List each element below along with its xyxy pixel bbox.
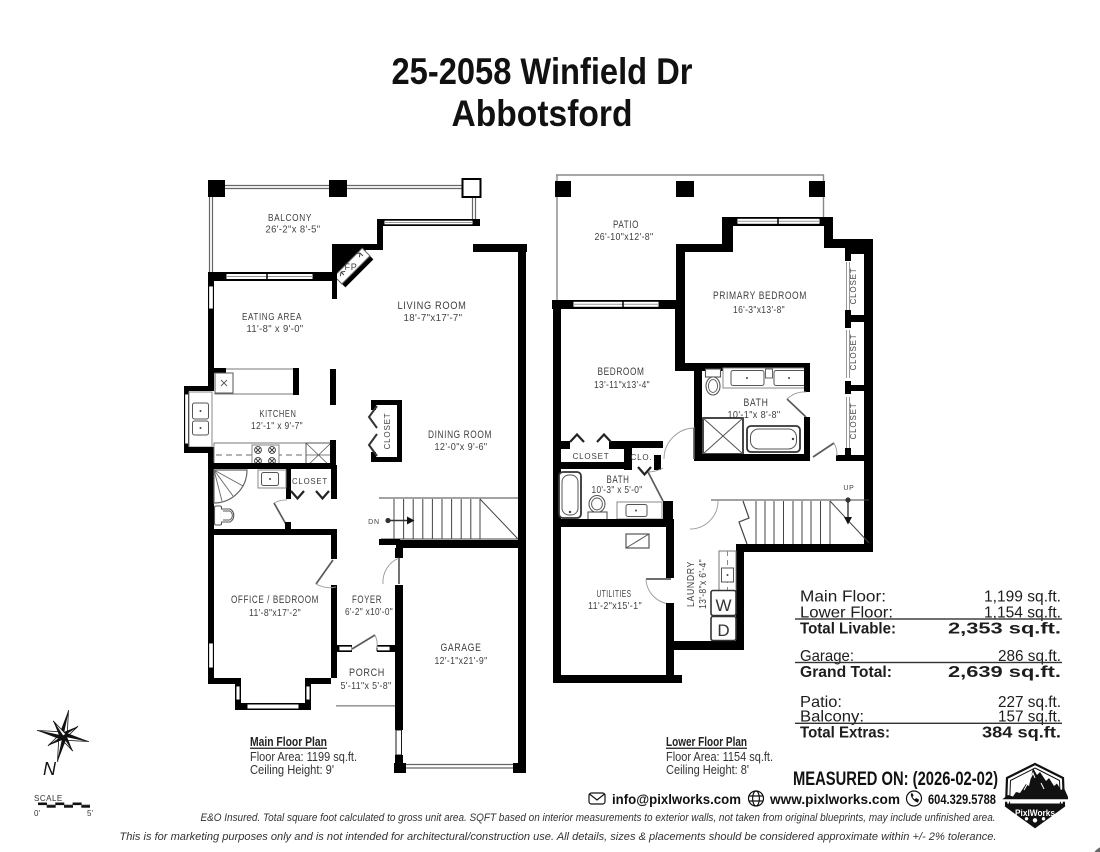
svg-text:Ceiling Height: 9': Ceiling Height: 9' (250, 763, 334, 777)
svg-text:16'-3"x13'-8": 16'-3"x13'-8" (733, 304, 785, 316)
svg-text:CLOSET: CLOSET (292, 477, 328, 486)
svg-text:2,353 sq.ft.: 2,353 sq.ft. (948, 621, 1061, 638)
svg-text:5': 5' (87, 809, 93, 818)
svg-text:Floor Area: 1154 sq.ft.: Floor Area: 1154 sq.ft. (666, 750, 773, 764)
svg-text:384 sq.ft.: 384 sq.ft. (982, 725, 1061, 742)
svg-text:11'-2"x15'-1": 11'-2"x15'-1" (588, 600, 642, 612)
svg-text:6'-2" x10'-0": 6'-2" x10'-0" (345, 606, 393, 618)
svg-text:D: D (717, 621, 729, 640)
svg-text:LAUNDRY: LAUNDRY (685, 561, 697, 607)
svg-text:SCALE: SCALE (34, 794, 63, 803)
svg-text:FP: FP (344, 262, 357, 272)
svg-text:Grand Total:: Grand Total: (800, 664, 892, 681)
svg-text:5'-11"x 5'-8": 5'-11"x 5'-8" (341, 680, 392, 692)
svg-text:12'-1" x 9'-7": 12'-1" x 9'-7" (251, 421, 303, 432)
svg-text:Ceiling Height: 8': Ceiling Height: 8' (666, 763, 749, 777)
svg-text:OFFICE / BEDROOM: OFFICE / BEDROOM (231, 594, 319, 606)
svg-text:FOYER: FOYER (352, 594, 382, 606)
svg-text:11'-8" x 9'-0": 11'-8" x 9'-0" (247, 324, 304, 335)
svg-text:25-2058 Winfield Dr: 25-2058 Winfield Dr (392, 51, 693, 92)
svg-text:Total Extras:: Total Extras: (800, 725, 890, 742)
svg-text:PATIO: PATIO (613, 219, 639, 231)
svg-text:26'-10"x12'-8": 26'-10"x12'-8" (595, 231, 654, 243)
svg-text:UTILITIES: UTILITIES (597, 588, 632, 600)
svg-text:PRIMARY BEDROOM: PRIMARY BEDROOM (713, 290, 807, 302)
svg-text:GARAGE: GARAGE (441, 642, 482, 654)
svg-text:EATING AREA: EATING AREA (242, 311, 302, 323)
svg-text:DINING ROOM: DINING ROOM (428, 429, 492, 441)
svg-text:0': 0' (34, 809, 40, 818)
svg-text:MEASURED ON: (2026-02-02): MEASURED ON: (2026-02-02) (793, 769, 998, 790)
svg-text:CLOSET: CLOSET (849, 268, 858, 305)
svg-text:DN: DN (368, 519, 380, 526)
svg-text:18'-7"x17'-7": 18'-7"x17'-7" (404, 312, 463, 324)
svg-text:BALCONY: BALCONY (268, 212, 312, 224)
svg-text:BATH: BATH (744, 397, 769, 409)
svg-text:This is for marketing purposes: This is for marketing purposes only and … (120, 831, 997, 843)
svg-text:E&O Insured. Total square foo: E&O Insured. Total square foot calculate… (201, 812, 996, 824)
svg-text:2,639 sq.ft.: 2,639 sq.ft. (948, 664, 1061, 681)
svg-text:Total Livable:: Total Livable: (800, 621, 896, 638)
svg-text:W: W (715, 596, 731, 615)
svg-text:CLOSET: CLOSET (849, 403, 858, 440)
svg-text:12'-0"x 9'-6": 12'-0"x 9'-6" (435, 442, 488, 453)
svg-text:11'-8"x17'-2": 11'-8"x17'-2" (249, 607, 301, 619)
svg-text:LIVING ROOM: LIVING ROOM (398, 300, 467, 312)
svg-text:10'-3" x 5'-0": 10'-3" x 5'-0" (592, 484, 643, 496)
svg-text:1,199 sq.ft.: 1,199 sq.ft. (984, 589, 1061, 606)
svg-text:CLOSET: CLOSET (383, 413, 392, 450)
svg-text:26'-2"x 8'-5": 26'-2"x 8'-5" (266, 225, 321, 236)
svg-text:604.329.5788: 604.329.5788 (928, 792, 996, 807)
svg-text:info@pixlworks.com: info@pixlworks.com (612, 792, 741, 807)
svg-text:PORCH: PORCH (349, 667, 385, 679)
svg-text:CLOSET: CLOSET (849, 334, 858, 371)
svg-text:UP: UP (843, 485, 854, 492)
svg-text:Lower Floor Plan: Lower Floor Plan (666, 734, 747, 749)
svg-text:Main Floor:: Main Floor: (800, 589, 886, 606)
svg-text:BEDROOM: BEDROOM (598, 366, 645, 378)
svg-text:Main Floor Plan: Main Floor Plan (250, 734, 327, 749)
svg-text:12'-1"x21'-9": 12'-1"x21'-9" (435, 655, 488, 667)
svg-text:Floor Area: 1199 sq.ft.: Floor Area: 1199 sq.ft. (250, 750, 357, 764)
svg-text:N: N (43, 759, 57, 779)
svg-text:CLOSET: CLOSET (573, 452, 610, 461)
svg-text:13'-11"x13'-4": 13'-11"x13'-4" (594, 379, 650, 391)
svg-text:CLO.: CLO. (631, 453, 653, 462)
svg-text:www.pixlworks.com: www.pixlworks.com (769, 792, 900, 807)
svg-text:Abbotsford: Abbotsford (452, 93, 633, 134)
svg-text:13'-8"x 6'-4": 13'-8"x 6'-4" (698, 559, 709, 609)
svg-text:KITCHEN: KITCHEN (260, 409, 297, 420)
svg-text:PixlWorks: PixlWorks (1015, 808, 1055, 818)
